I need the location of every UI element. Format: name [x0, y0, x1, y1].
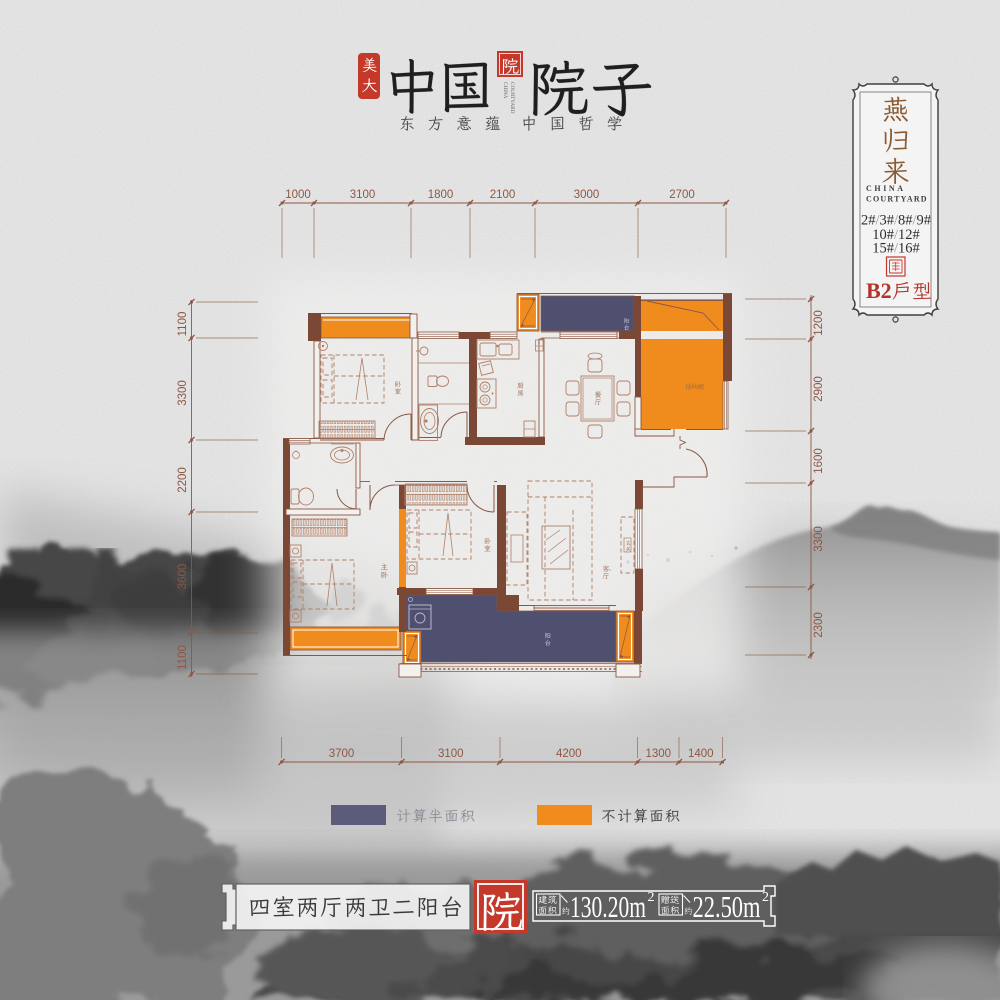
- svg-text:2: 2: [762, 890, 769, 905]
- svg-text:3700: 3700: [329, 748, 355, 760]
- svg-text:3300: 3300: [813, 526, 825, 552]
- svg-text:3300: 3300: [177, 380, 189, 406]
- svg-text:2: 2: [648, 890, 655, 905]
- svg-text:3600: 3600: [177, 564, 189, 590]
- svg-text:2200: 2200: [177, 467, 189, 493]
- svg-text:COURTYARD: COURTYARD: [509, 82, 515, 114]
- svg-text:1100: 1100: [177, 645, 189, 670]
- svg-text:3100: 3100: [438, 748, 464, 760]
- svg-text:1800: 1800: [428, 189, 454, 201]
- svg-text:130.20m: 130.20m: [570, 889, 646, 924]
- svg-text:B2: B2: [866, 278, 892, 303]
- svg-text:1300: 1300: [645, 748, 671, 760]
- svg-text:15#/16#: 15#/16#: [872, 241, 920, 257]
- svg-text:2700: 2700: [669, 189, 695, 201]
- svg-text:1600: 1600: [813, 448, 825, 474]
- svg-text:4200: 4200: [556, 748, 582, 760]
- svg-text:COURTYARD: COURTYARD: [866, 195, 928, 204]
- svg-text:2900: 2900: [813, 376, 825, 402]
- svg-text:1400: 1400: [688, 748, 714, 760]
- svg-text:1100: 1100: [177, 312, 189, 337]
- svg-text:CHINA: CHINA: [866, 184, 906, 193]
- svg-text:3000: 3000: [574, 189, 600, 201]
- svg-text:2300: 2300: [813, 612, 825, 638]
- svg-text:2100: 2100: [490, 189, 516, 201]
- svg-text:3100: 3100: [350, 189, 376, 201]
- svg-text:1000: 1000: [285, 189, 311, 201]
- svg-text:22.50m: 22.50m: [693, 889, 761, 924]
- svg-text:CHINA: CHINA: [502, 82, 508, 99]
- svg-text:1200: 1200: [813, 310, 825, 336]
